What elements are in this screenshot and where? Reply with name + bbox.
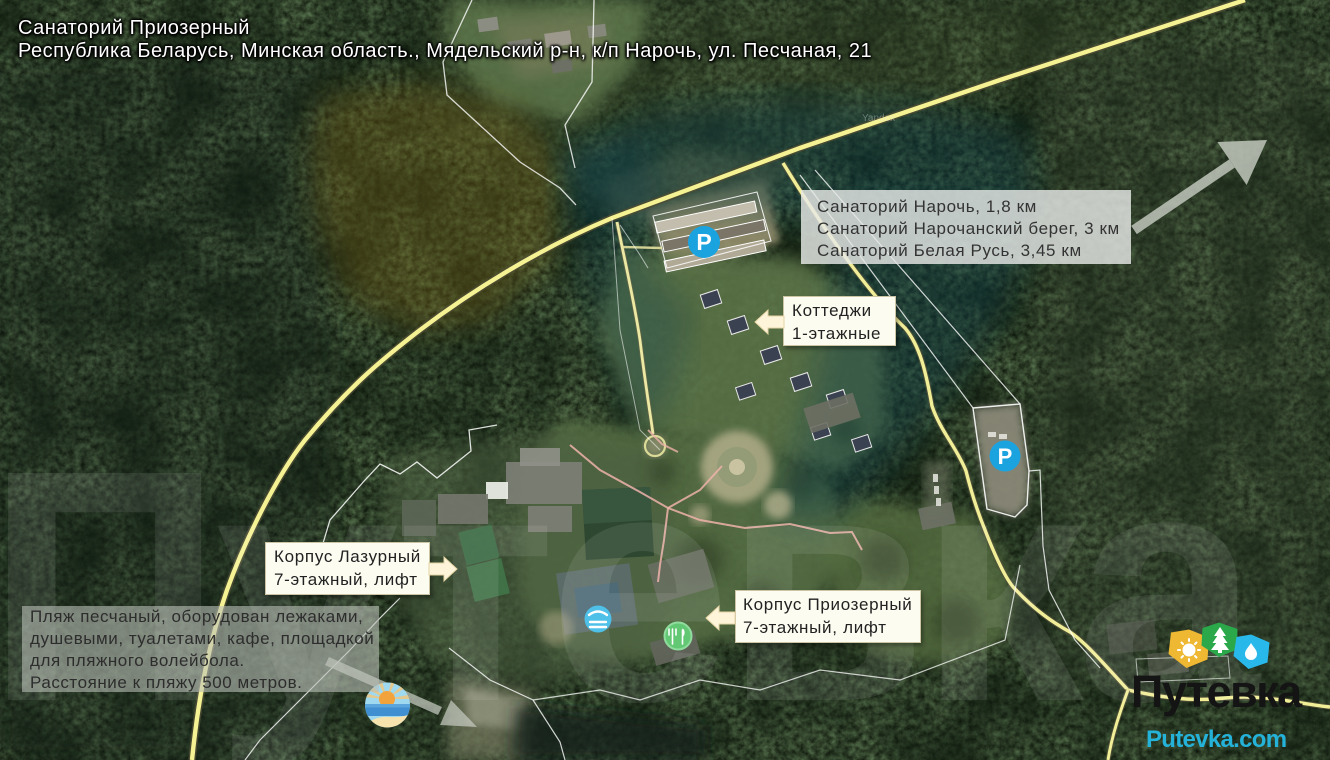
svg-text:Yandex: Yandex bbox=[862, 113, 895, 124]
svg-text:P: P bbox=[998, 444, 1013, 469]
svg-text:P: P bbox=[696, 229, 711, 255]
svg-text:Путевка: Путевка bbox=[0, 401, 1262, 760]
